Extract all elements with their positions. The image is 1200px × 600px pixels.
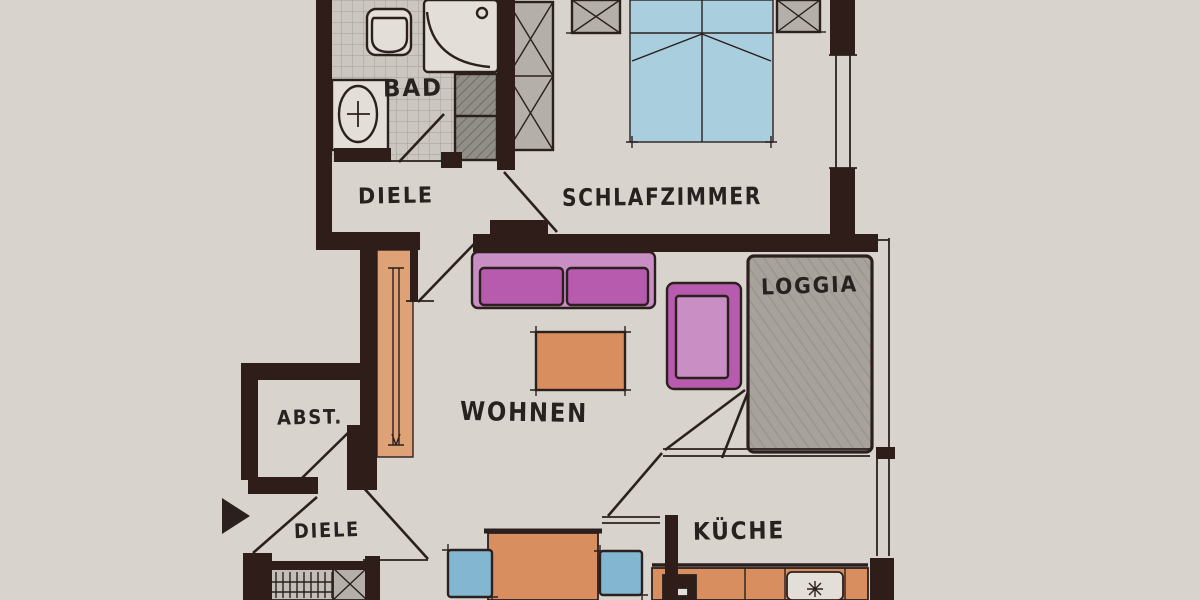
armchair-icon [667,283,741,389]
entry-wardrobe-icon [256,568,367,600]
room-label-diele-lower: DIELE [294,517,361,543]
nightstand-left-icon [566,0,620,33]
nightstand-right-icon [777,0,826,32]
room-label-abst: ABST. [277,404,343,429]
room-label-bad: BAD [383,73,443,102]
floor-plan-page: BAD DIELE SCHLAFZIMMER LOGGIA WOHNEN ABS… [0,0,1200,600]
washbasin-icon [332,80,388,150]
hall-wardrobe-icon [377,250,413,457]
double-bed-icon [626,0,777,148]
sofa-icon [472,252,655,308]
coffee-table-icon [530,326,631,396]
room-label-diele-upper: DIELE [358,183,434,209]
kitchen-counter-icon [652,565,868,600]
bath-shaft-hatched [455,74,497,160]
room-label-wohnen: WOHNEN [460,397,589,429]
dining-chair-right-icon [594,545,648,600]
room-label-kueche: KÜCHE [693,514,786,546]
dining-table-icon [484,531,602,600]
floor-plan-drawing: BAD DIELE SCHLAFZIMMER LOGGIA WOHNEN ABS… [0,0,1200,600]
room-label-schlafzimmer: SCHLAFZIMMER [562,182,762,212]
shower-icon [424,0,498,72]
room-label-loggia: LOGGIA [761,272,859,300]
dining-chair-left-icon [442,544,498,600]
toilet-icon [367,9,411,55]
